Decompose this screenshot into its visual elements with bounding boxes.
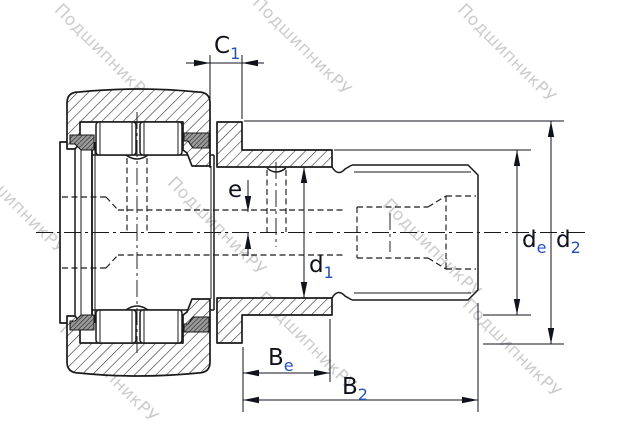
dimension-label-e: e bbox=[228, 177, 242, 203]
arrow bbox=[301, 282, 307, 298]
arrow bbox=[301, 167, 307, 183]
arrow bbox=[548, 121, 554, 137]
hex-socket-chamfer-hidden bbox=[106, 255, 118, 268]
relief-groove-top bbox=[332, 165, 352, 173]
watermark-text: ПодшипникРУ bbox=[458, 295, 565, 402]
bearing-drawing: ПодшипникРУ ПодшипникРУ ПодшипникРУ Подш… bbox=[0, 0, 624, 444]
grease-hole-arc bbox=[267, 168, 286, 172]
hex-socket-chamfer-hidden bbox=[106, 197, 118, 210]
roller bbox=[96, 310, 136, 343]
dimension-label-de: de bbox=[522, 227, 546, 257]
arrow bbox=[243, 397, 259, 403]
dimension-label-c1: C1 bbox=[214, 33, 240, 63]
dimension-label-b2: B2 bbox=[342, 374, 368, 404]
roller bbox=[140, 122, 182, 155]
arrow bbox=[242, 60, 258, 66]
watermark-text: ПодшипникРУ bbox=[163, 173, 270, 280]
watermark-text: ПодшипникРУ bbox=[453, 0, 560, 107]
watermark-text: ПодшипникРУ bbox=[0, 151, 69, 258]
watermark-text: ПодшипникРУ bbox=[248, 0, 355, 100]
arrow bbox=[243, 370, 259, 376]
technical-drawing-page: ПодшипникРУ ПодшипникРУ ПодшипникРУ Подш… bbox=[0, 0, 624, 444]
roller bbox=[140, 310, 182, 343]
roller bbox=[96, 122, 136, 155]
watermark-text: ПодшипникРУ bbox=[378, 195, 485, 302]
dimension-label-d2: d2 bbox=[556, 227, 581, 257]
collar-top-section bbox=[217, 122, 332, 167]
dimension-label-be: Be bbox=[268, 345, 294, 375]
hidden-lines bbox=[62, 158, 476, 269]
relief-groove-bottom bbox=[332, 292, 352, 300]
arrow bbox=[548, 328, 554, 344]
arrow bbox=[514, 150, 520, 166]
arrow bbox=[194, 60, 210, 66]
dimension-label-d1: d1 bbox=[309, 252, 334, 282]
socket-chamfer-hidden bbox=[428, 196, 446, 207]
arrow bbox=[514, 299, 520, 315]
arrow bbox=[462, 397, 478, 403]
